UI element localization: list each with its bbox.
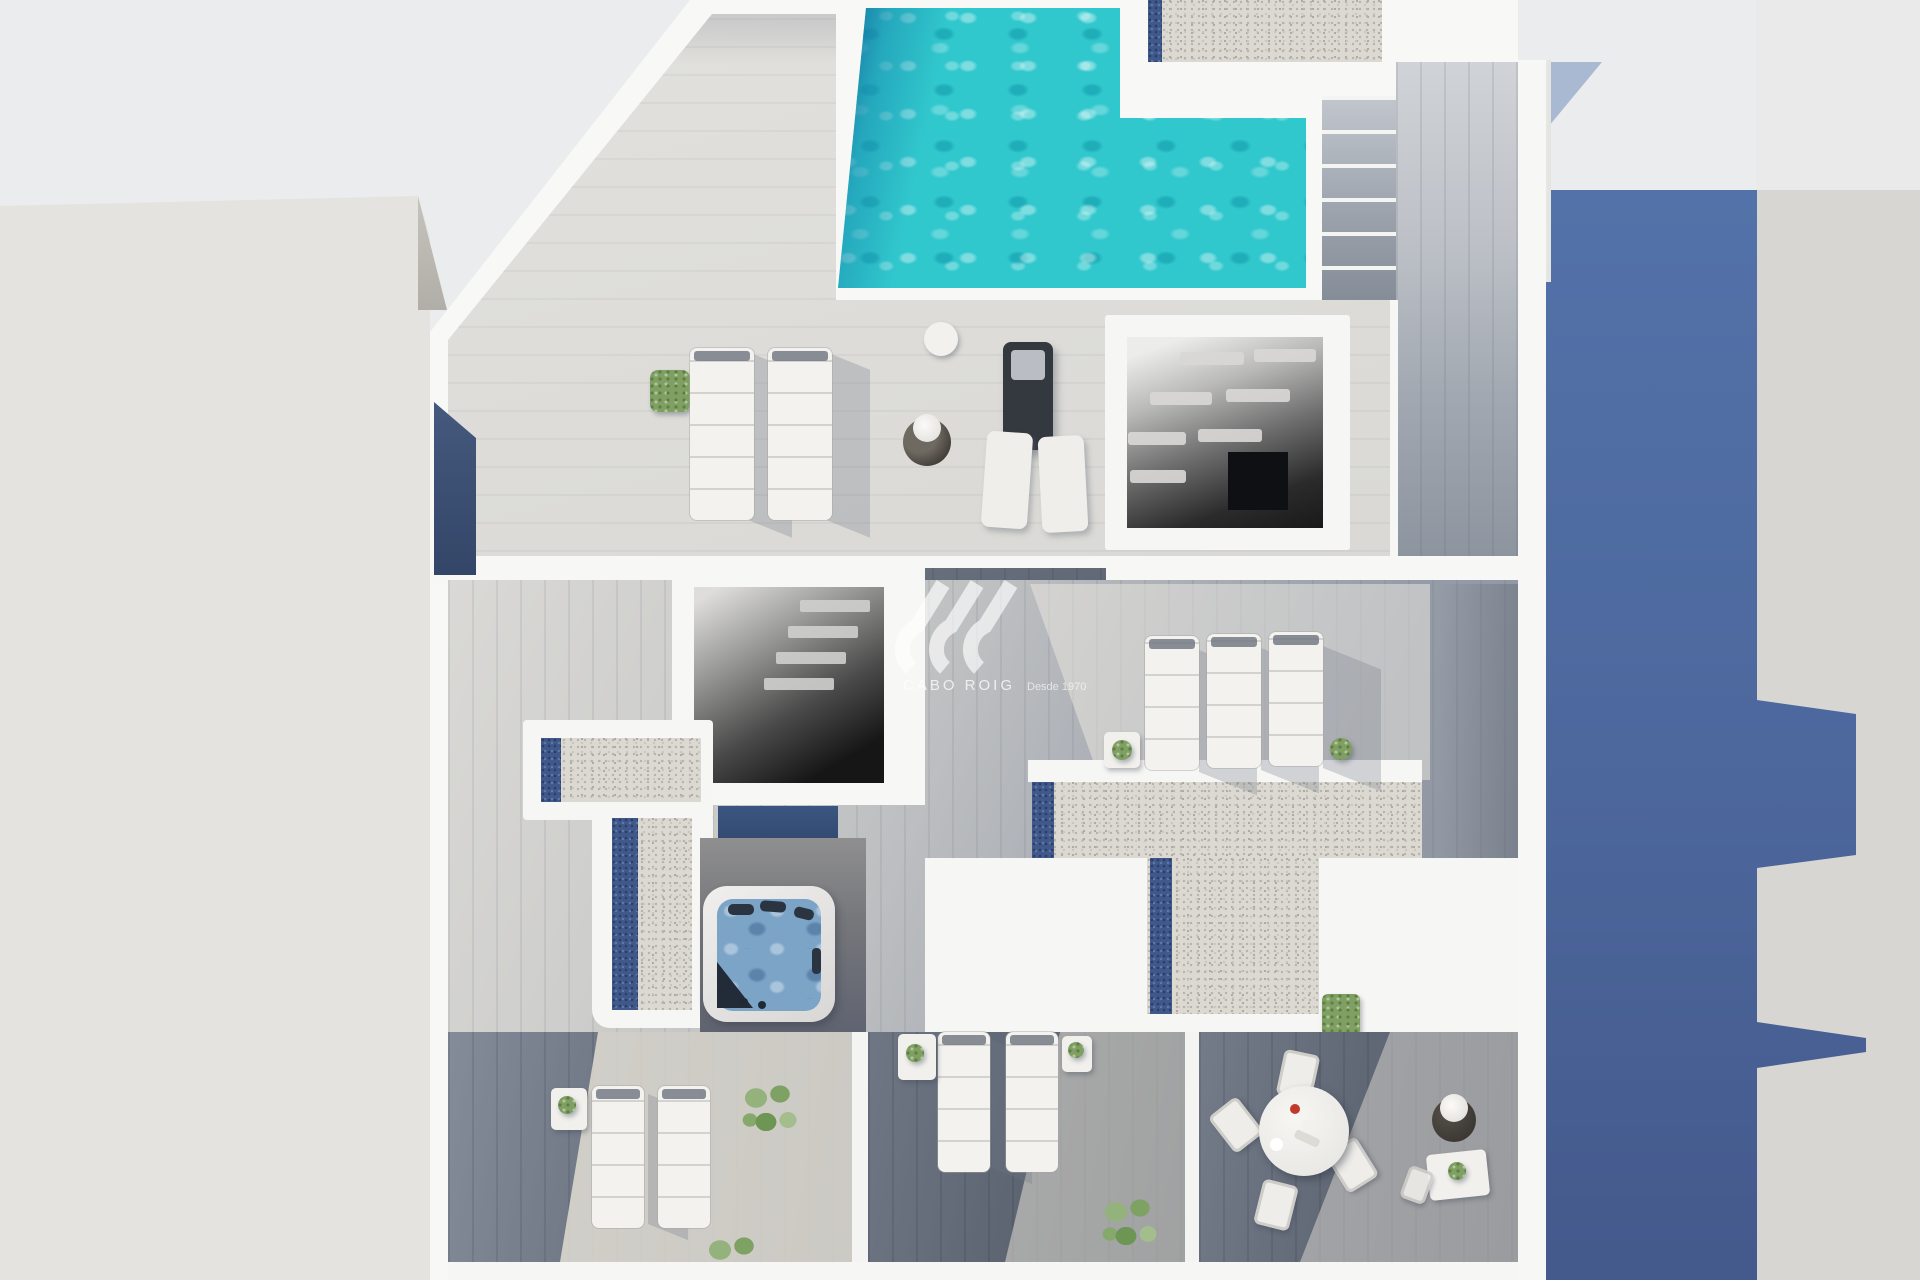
potted-plant xyxy=(1330,738,1352,760)
potted-plant xyxy=(1448,1162,1466,1180)
lounger-headrest xyxy=(1010,1035,1054,1045)
grass-patch xyxy=(1322,994,1360,1036)
leafy-plant xyxy=(736,1076,808,1150)
louver-slat xyxy=(1150,392,1212,405)
side-walkway xyxy=(1396,62,1518,576)
flat-lounger xyxy=(981,431,1034,530)
sun-lounger xyxy=(1006,1032,1058,1172)
dining-table xyxy=(1259,1086,1349,1176)
lounger-headrest xyxy=(596,1089,640,1099)
louver-slat xyxy=(1198,429,1262,442)
l-pergola-gravel-top xyxy=(541,738,701,802)
round-side-table xyxy=(924,322,958,356)
plate xyxy=(1302,1120,1312,1130)
topiary-plant xyxy=(1112,740,1132,760)
t-pergola-white-left xyxy=(925,858,1147,1030)
t-pergola-bottom-band xyxy=(925,1014,1518,1034)
right-building-corner-wedge xyxy=(1544,62,1602,132)
lounger-headrest xyxy=(772,351,828,361)
pool-staircase xyxy=(1322,96,1396,302)
terrace-divider-wall xyxy=(852,1032,868,1262)
sun-lounger xyxy=(768,348,832,520)
right-neighbor-roof-top xyxy=(1756,0,1920,192)
t-pergola-gravel-bar xyxy=(1032,782,1422,860)
cabo-roig-watermark: CABO ROIG Desde 1970 xyxy=(845,572,1125,707)
lounger-headrest xyxy=(1211,637,1257,647)
left-neighbor-side-wall xyxy=(418,196,452,310)
potted-plant xyxy=(1068,1042,1084,1058)
sun-lounger xyxy=(1145,636,1199,770)
rooftop-render-scene: CABO ROIG Desde 1970 xyxy=(0,0,1920,1280)
lounger-shadow xyxy=(826,352,870,538)
sun-lounger xyxy=(592,1086,644,1228)
topiary-plant xyxy=(558,1096,576,1114)
sun-lounger xyxy=(938,1032,990,1172)
main-right-parapet xyxy=(1518,60,1546,1280)
louver-slat xyxy=(1128,432,1186,445)
watermark-tagline-text: Desde 1970 xyxy=(1027,681,1086,693)
louver-slat xyxy=(1226,389,1290,402)
t-pergola-pebble-strip-stem xyxy=(1150,858,1172,1014)
sv-wave-logo-icon: CABO ROIG Desde 1970 xyxy=(845,572,1125,707)
stair-step xyxy=(776,652,846,664)
jacuzzi-side-jet xyxy=(812,948,821,974)
red-bowl xyxy=(1290,1104,1300,1114)
l-pergola-pebble-strip-stem xyxy=(612,818,638,1010)
jacuzzi-control xyxy=(740,998,748,1006)
planter-white-plant xyxy=(913,414,941,442)
louver-slat xyxy=(1180,352,1244,365)
stair-step xyxy=(764,678,834,690)
jacuzzi-control xyxy=(758,1001,766,1009)
jacuzzi-headrest xyxy=(760,900,787,913)
lounger-headrest xyxy=(662,1089,706,1099)
lounger-headrest xyxy=(942,1035,986,1045)
plate xyxy=(1270,1138,1283,1151)
jacuzzi-headrest xyxy=(728,904,754,915)
lounger-headrest xyxy=(1149,639,1195,649)
topiary-plant xyxy=(906,1044,924,1062)
t-pergola-pebble-strip-bar xyxy=(1032,782,1054,860)
gravel-roof-above-pool xyxy=(1162,0,1382,62)
sun-lounger xyxy=(1269,632,1323,766)
flat-lounger xyxy=(1038,435,1089,533)
l-pergola-pebble-strip xyxy=(541,738,561,802)
pool-chair-towel xyxy=(1011,350,1045,380)
sun-lounger xyxy=(1207,634,1261,768)
lounger-headrest xyxy=(694,351,750,361)
pebble-strip-above-pool xyxy=(1148,0,1162,62)
lounger-headrest xyxy=(1273,635,1319,645)
sun-lounger xyxy=(690,348,754,520)
stairwell-dark-opening xyxy=(1228,452,1288,510)
bottom-parapet xyxy=(448,1262,1518,1280)
square-shrub xyxy=(650,370,690,412)
left-neighbor-roof xyxy=(0,196,430,1280)
lounger-shadow xyxy=(1323,646,1381,791)
watermark-brand-text: CABO ROIG xyxy=(903,677,1015,694)
louver-slat xyxy=(1254,349,1316,362)
sun-lounger xyxy=(658,1086,710,1228)
planter-white-flowers xyxy=(1440,1094,1468,1122)
t-pergola-gravel-stem xyxy=(1147,858,1319,1014)
terrace-divider-wall xyxy=(1185,1032,1199,1262)
leafy-bush xyxy=(1096,1190,1158,1256)
louver-slat xyxy=(1130,470,1186,483)
